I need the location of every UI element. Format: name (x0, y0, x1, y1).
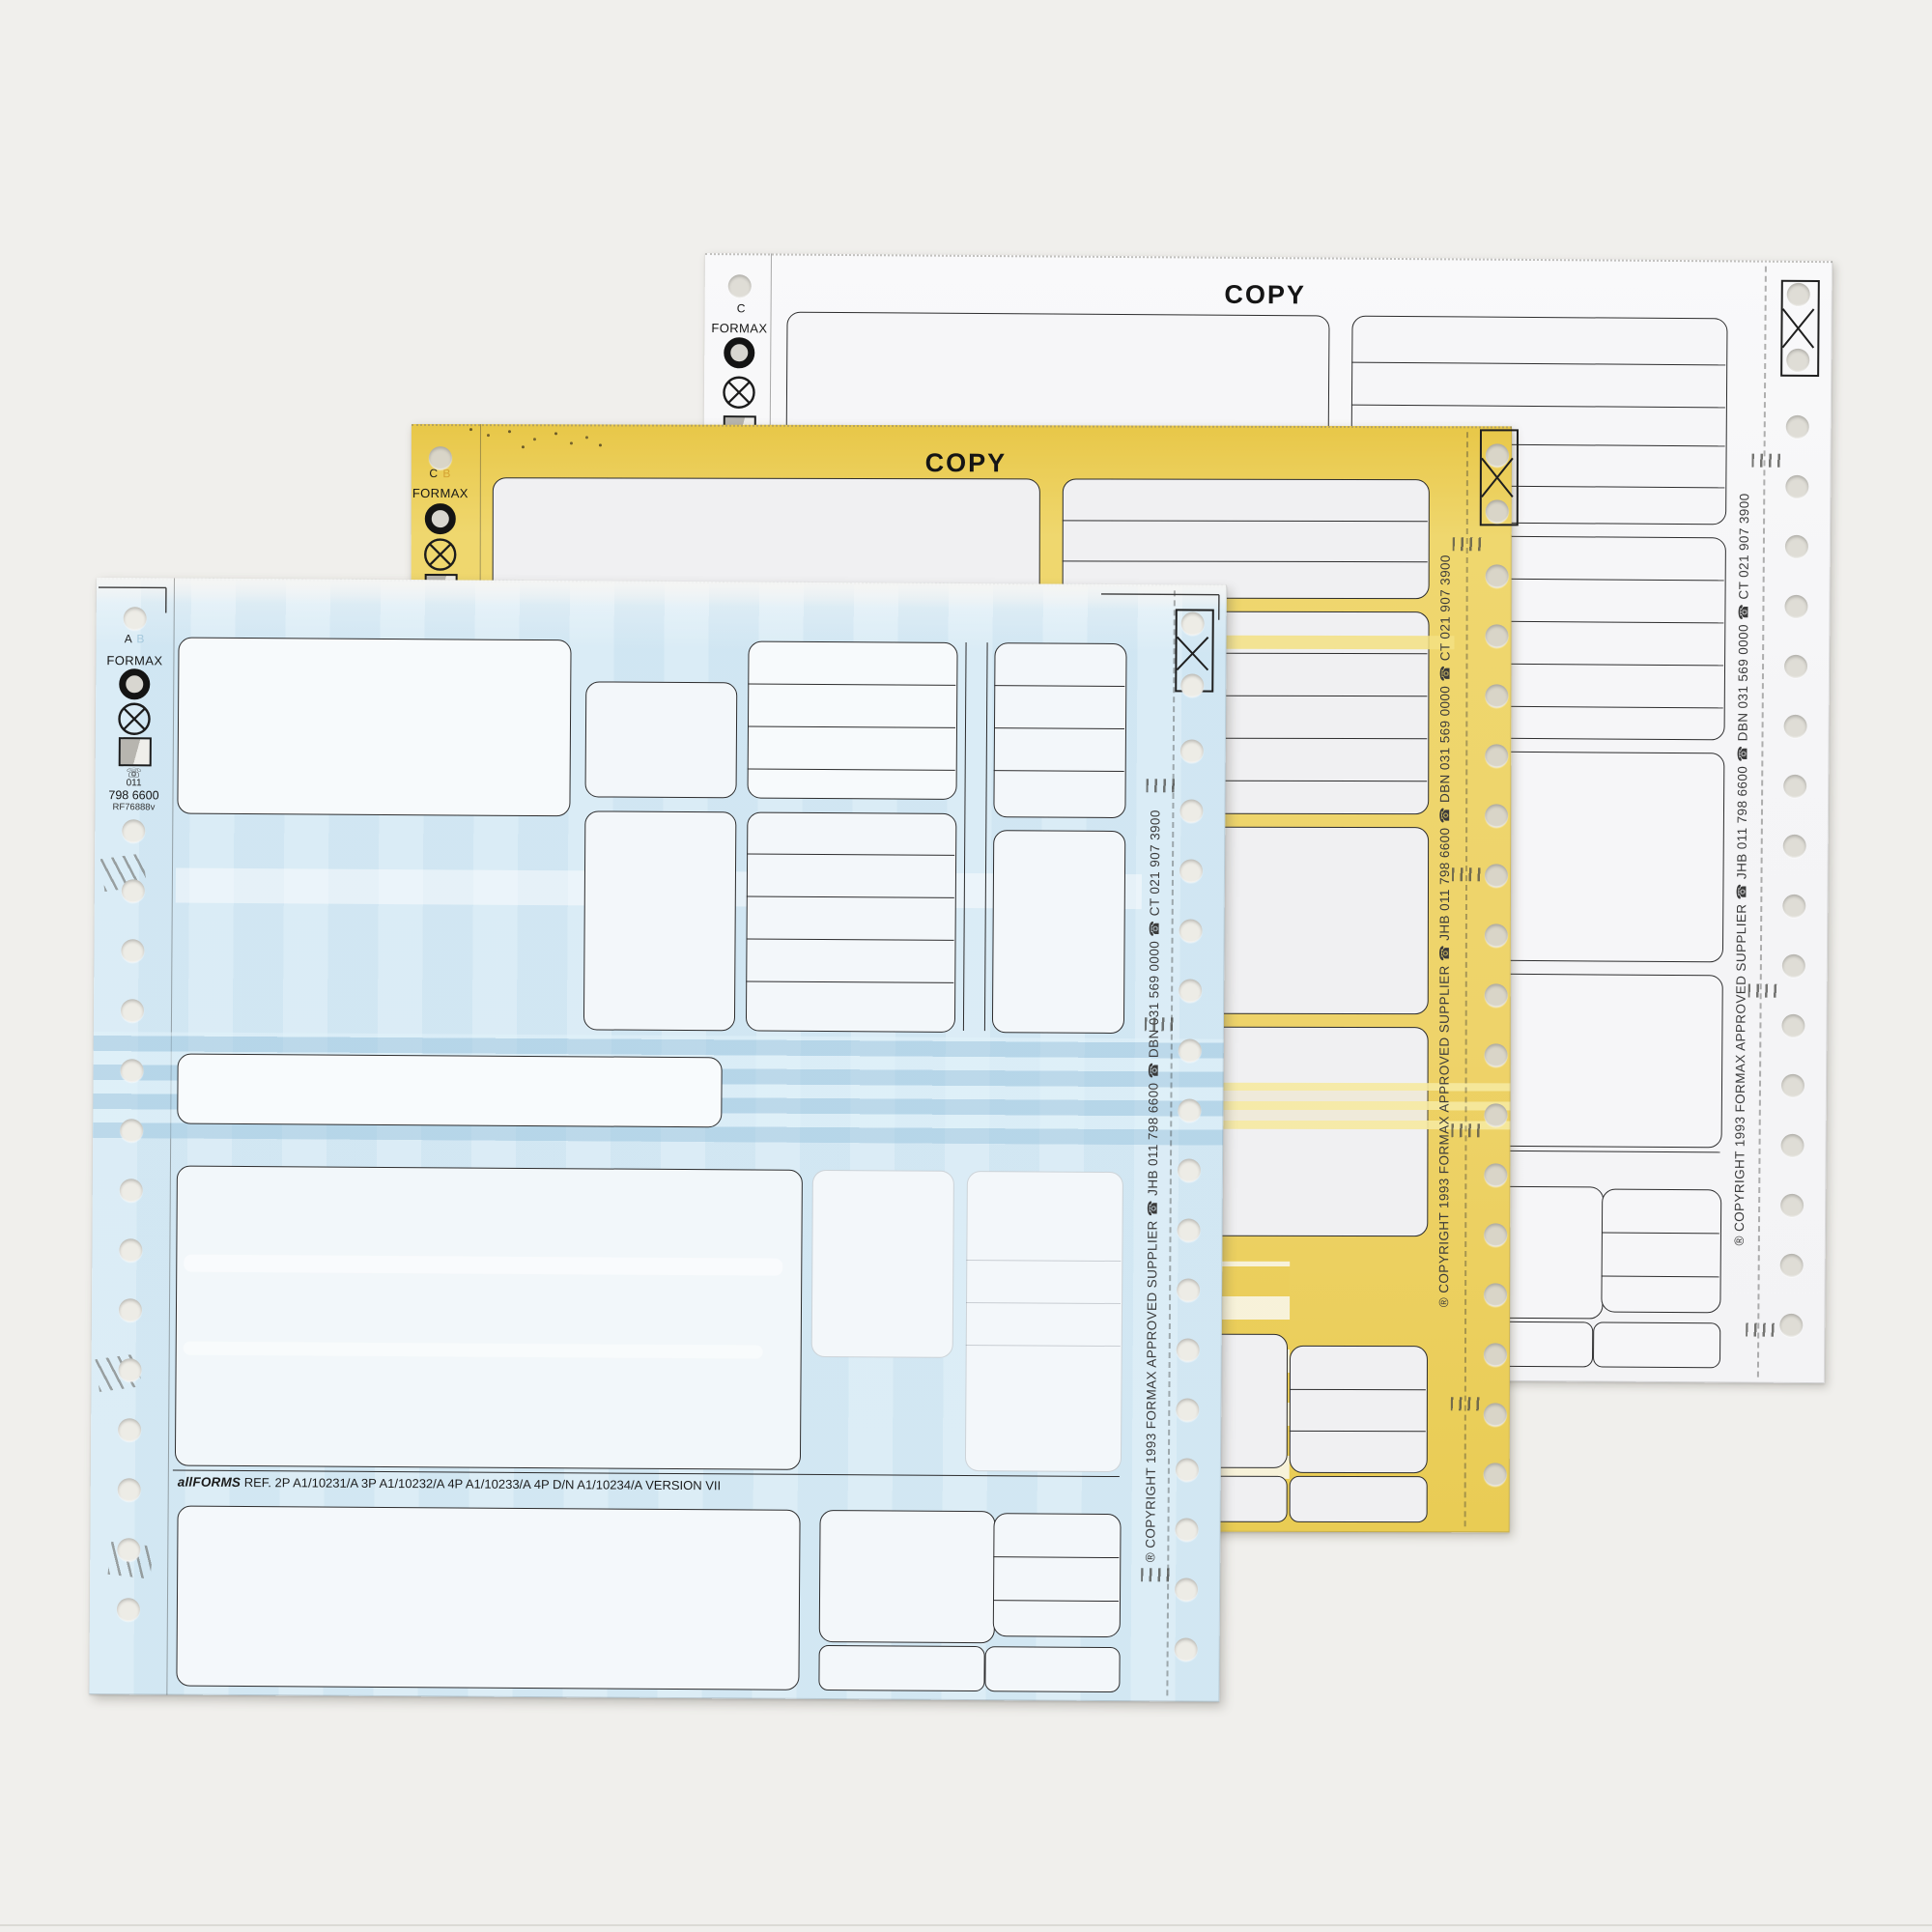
tractor-feed-hole (117, 1598, 140, 1621)
tractor-feed-hole (1486, 564, 1509, 587)
column-divider-line (984, 642, 988, 1031)
registration-tick-marks (1147, 779, 1179, 792)
tractor-feed-hole (121, 999, 144, 1022)
tractor-feed-hole (120, 1119, 143, 1142)
form-field-box (585, 681, 738, 798)
part-letter: A B (99, 632, 172, 646)
tractor-feed-hole (1484, 1403, 1507, 1426)
tractor-feed-hole (1179, 799, 1203, 822)
form-field-box (1593, 1321, 1720, 1368)
tractor-feed-hole (1485, 923, 1508, 947)
tractor-feed-hole (1484, 1103, 1507, 1126)
copyright-vertical-text: ® COPYRIGHT 1993 FORMAX APPROVED SUPPLIE… (1732, 501, 1752, 1245)
copy-watermark: COPY (903, 448, 1029, 478)
tractor-feed-hole (1485, 744, 1508, 767)
form-field-box (583, 810, 737, 1031)
tractor-feed-hole (1178, 1098, 1201, 1122)
tractor-feed-hole (1181, 611, 1205, 635)
tractor-feed-hole (1485, 684, 1508, 707)
registration-tick-marks (1145, 1017, 1178, 1031)
tractor-feed-hole (728, 274, 752, 298)
form-field-box (993, 1513, 1122, 1637)
copyright-vertical-text: ® COPYRIGHT 1993 FORMAX APPROVED SUPPLIE… (1143, 818, 1163, 1562)
formax-logo: FORMAX (394, 486, 487, 500)
registration-tick-marks (1751, 454, 1784, 468)
tractor-feed-hole (117, 1538, 140, 1561)
tractor-feed-hole (1484, 1343, 1507, 1366)
tractor-feed-hole (1782, 954, 1805, 978)
ghost-impression-box (811, 1170, 954, 1358)
tractor-feed-hole (1484, 1223, 1507, 1246)
alignment-x-mark (1780, 307, 1815, 350)
tractor-feed-hole (118, 1418, 141, 1441)
tractor-feed-hole (1485, 1043, 1508, 1066)
form-field-box (984, 1646, 1120, 1692)
crossed-circle-icon (117, 701, 152, 736)
form-field-box (746, 811, 957, 1032)
tractor-feed-hole (1179, 1038, 1202, 1062)
tractor-feed-hole (1787, 283, 1810, 306)
tractor-feed-hole (429, 446, 452, 469)
formax-logo: FORMAX (693, 321, 785, 336)
tractor-feed-hole (119, 1298, 142, 1321)
copyright-vertical-text: ® COPYRIGHT 1993 FORMAX APPROVED SUPPLIE… (1436, 563, 1454, 1307)
tractor-feed-hole (1781, 1074, 1804, 1097)
tractor-feed-hole (1485, 983, 1508, 1007)
registration-tick-marks (1451, 1397, 1484, 1410)
form-field-box (1601, 1189, 1721, 1314)
crossed-circle-icon (722, 375, 756, 410)
tractor-feed-hole (1786, 349, 1809, 372)
tractor-feed-hole (1179, 919, 1203, 942)
tractor-feed-hole (1785, 475, 1808, 498)
registration-tick-marks (1452, 867, 1485, 881)
tractor-feed-hole (1177, 1278, 1200, 1301)
registration-circle-icon (119, 668, 150, 699)
registration-circle-icon (425, 503, 456, 534)
form-field-box (177, 1054, 722, 1128)
form-field-box (176, 1506, 800, 1690)
tractor-feed-hole (1180, 673, 1204, 696)
form-field-box (1290, 1346, 1428, 1473)
form-field-box (175, 1166, 803, 1470)
perforation-dash-line (1757, 267, 1767, 1378)
tractor-feed-hole (122, 879, 145, 902)
tractor-feed-hole (1177, 1218, 1200, 1241)
tractor-feed-hole (1179, 859, 1203, 882)
tractor-feed-hole (1783, 775, 1806, 798)
tractor-feed-hole (1178, 1158, 1201, 1181)
form-field-box (1063, 478, 1430, 599)
registration-tick-marks (1141, 1568, 1174, 1581)
tractor-feed-hole (1786, 415, 1809, 439)
tractor-feed-hole (1176, 1398, 1199, 1421)
tractor-feed-hole (1783, 835, 1806, 858)
tractor-feed-hole (121, 1059, 144, 1082)
form-field-box (1290, 1476, 1428, 1522)
margin-phone-code: 011 (96, 778, 173, 789)
column-divider-line (963, 642, 967, 1031)
copy-watermark: COPY (1203, 280, 1328, 311)
tractor-feed-hole (118, 1358, 141, 1381)
crossed-circle-icon (423, 537, 458, 572)
tractor-feed-hole (121, 939, 144, 962)
part-letter: C (705, 301, 779, 316)
form-field-box (747, 640, 957, 799)
registration-circle-icon (724, 337, 754, 368)
tractor-feed-hole (1785, 535, 1808, 558)
form-field-box (177, 638, 571, 817)
tractor-feed-hole (1485, 864, 1508, 887)
tractor-feed-hole (1175, 1577, 1198, 1601)
formax-logo: FORMAX (88, 653, 181, 668)
tractor-feed-hole (1782, 895, 1805, 918)
tractor-feed-hole (1177, 1338, 1200, 1361)
tractor-feed-hole (122, 819, 145, 842)
tractor-feed-hole (124, 607, 147, 630)
tractor-feed-hole (1780, 1194, 1804, 1217)
tractor-feed-hole (1484, 1163, 1507, 1186)
tractor-feed-hole (1486, 499, 1509, 523)
tractor-feed-hole (119, 1238, 142, 1262)
tractor-feed-hole (1780, 1254, 1804, 1277)
form-field-box (819, 1510, 996, 1643)
tractor-feed-hole (1179, 979, 1202, 1002)
tractor-feed-hole (1784, 595, 1807, 618)
margin-ref-code: RF76888v (95, 802, 172, 813)
tractor-feed-hole (1784, 715, 1807, 738)
margin-phone-number: 798 6600 (95, 788, 172, 803)
perforation-dash-line (1464, 432, 1468, 1526)
registration-tick-marks (1453, 537, 1486, 551)
tractor-feed-hole (1781, 1014, 1804, 1037)
tractor-feed-hole (1486, 443, 1509, 467)
tractor-feed-hole (1780, 1134, 1804, 1157)
tractor-feed-hole (120, 1179, 143, 1202)
form-sheet-blue-original: A B FORMAX ☏ 011 798 6600 RF76888v all (89, 578, 1227, 1702)
alignment-x-mark (1175, 635, 1209, 671)
tractor-feed-hole (1175, 1518, 1198, 1541)
form-reference-line: allFORMS REF. 2P A1/10231/A 3P A1/10232/… (178, 1475, 721, 1493)
ghost-impression-box (965, 1171, 1123, 1472)
registration-tick-marks (1748, 984, 1781, 998)
background-surface-edge (0, 1924, 1932, 1926)
form-field-box (992, 830, 1125, 1034)
tractor-feed-hole (1784, 655, 1807, 678)
tractor-feed-hole (1779, 1314, 1803, 1337)
tractor-feed-hole (1484, 1463, 1507, 1486)
form-field-box (993, 642, 1126, 818)
registration-tick-marks (1451, 1123, 1484, 1137)
tractor-feed-hole (1486, 624, 1509, 647)
allforms-logo: allFORMS (178, 1475, 241, 1490)
registration-tick-marks (1746, 1323, 1778, 1337)
margin-fold-line (166, 579, 175, 1695)
half-filled-square-icon (119, 737, 152, 766)
form-field-box (818, 1645, 984, 1691)
tractor-feed-hole (1176, 1458, 1199, 1481)
tractor-feed-hole (1485, 804, 1508, 827)
tractor-feed-hole (118, 1478, 141, 1501)
dust-speckles (469, 428, 472, 431)
tractor-feed-hole (1180, 739, 1204, 762)
tractor-feed-hole (1175, 1637, 1198, 1661)
tractor-feed-hole (1484, 1283, 1507, 1306)
